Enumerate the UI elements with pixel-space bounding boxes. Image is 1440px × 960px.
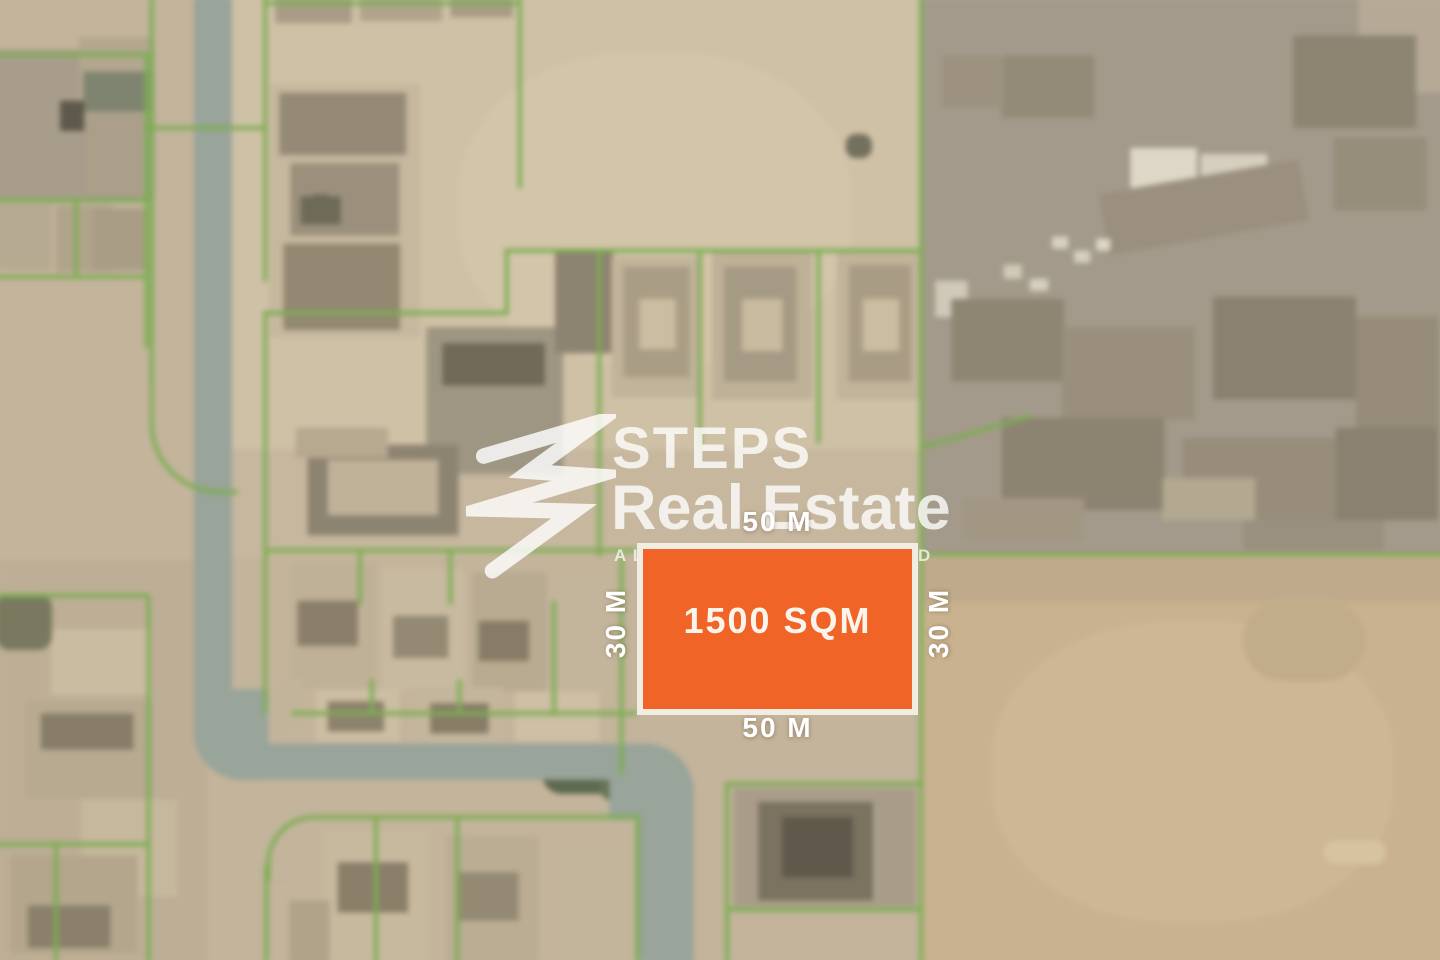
plot-overlay: 1500 SQM [637, 543, 918, 715]
plot-dim-top: 50 M [637, 506, 918, 538]
plot-area-label: 1500 SQM [683, 600, 871, 642]
plot-dim-bottom: 50 M [637, 712, 918, 744]
plot-dim-left: 30 M [600, 588, 632, 658]
satellite-plot-image: STEPS Real Estate ALWAYS A STEP AHEAD 15… [0, 0, 1440, 960]
satellite-basemap [0, 0, 1440, 960]
plot-dim-right: 30 M [923, 588, 955, 658]
